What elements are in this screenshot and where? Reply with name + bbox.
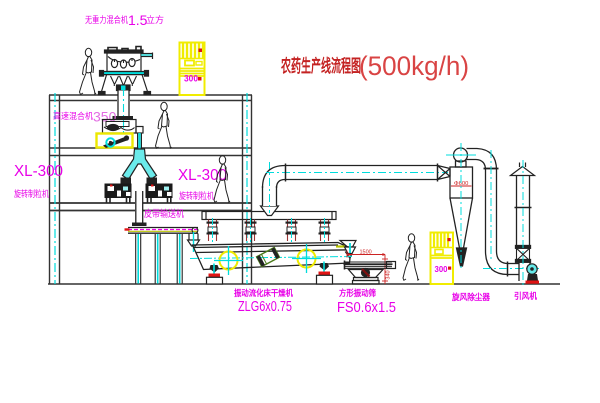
svg-text:皮带输送机: 皮带输送机 [144,208,184,220]
svg-text:方形振动筛: 方形振动筛 [339,288,376,298]
svg-text:农药生产线流程图: 农药生产线流程图 [280,56,361,76]
svg-text:立方: 立方 [146,14,164,25]
svg-text:FS0.6x1.5: FS0.6x1.5 [337,300,396,316]
svg-text:1500: 1500 [360,250,372,256]
svg-text:旋风除尘器: 旋风除尘器 [451,292,490,302]
svg-text:(500kg/h): (500kg/h) [359,51,469,81]
svg-text:ZLG6x0.75: ZLG6x0.75 [238,299,292,315]
svg-text:无重力混合机: 无重力混合机 [85,14,128,25]
svg-text:高速混合机: 高速混合机 [53,111,93,121]
svg-text:引风机: 引风机 [514,291,537,301]
svg-text:350: 350 [93,109,117,125]
svg-text:旋转制粒机: 旋转制粒机 [179,190,214,201]
svg-text:旋转制粒机: 旋转制粒机 [14,188,49,199]
svg-text:XL-300: XL-300 [14,163,63,180]
svg-text:340: 340 [386,270,392,279]
svg-text:1.5: 1.5 [128,12,148,28]
svg-text:300: 300 [435,264,448,274]
svg-text:振动流化床干燥机: 振动流化床干燥机 [234,288,293,298]
svg-text:300: 300 [184,74,198,84]
